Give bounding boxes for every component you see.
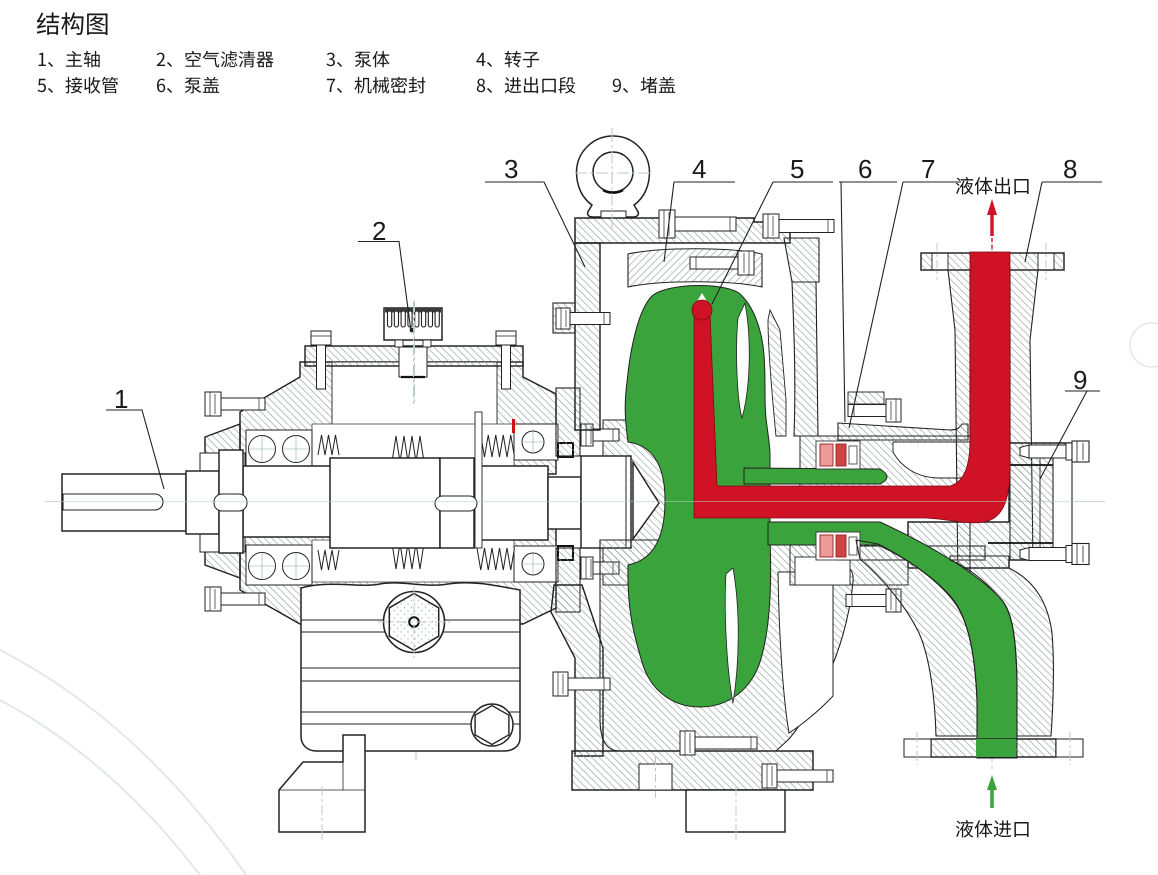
svg-text:9: 9: [1073, 365, 1087, 395]
svg-text:2: 2: [372, 216, 386, 246]
svg-text:1: 1: [114, 384, 128, 414]
svg-text:4: 4: [692, 154, 706, 184]
svg-text:7: 7: [921, 154, 935, 184]
svg-text:6: 6: [858, 154, 872, 184]
svg-text:5: 5: [790, 154, 804, 184]
svg-text:3: 3: [504, 154, 518, 184]
svg-text:8: 8: [1063, 154, 1077, 184]
